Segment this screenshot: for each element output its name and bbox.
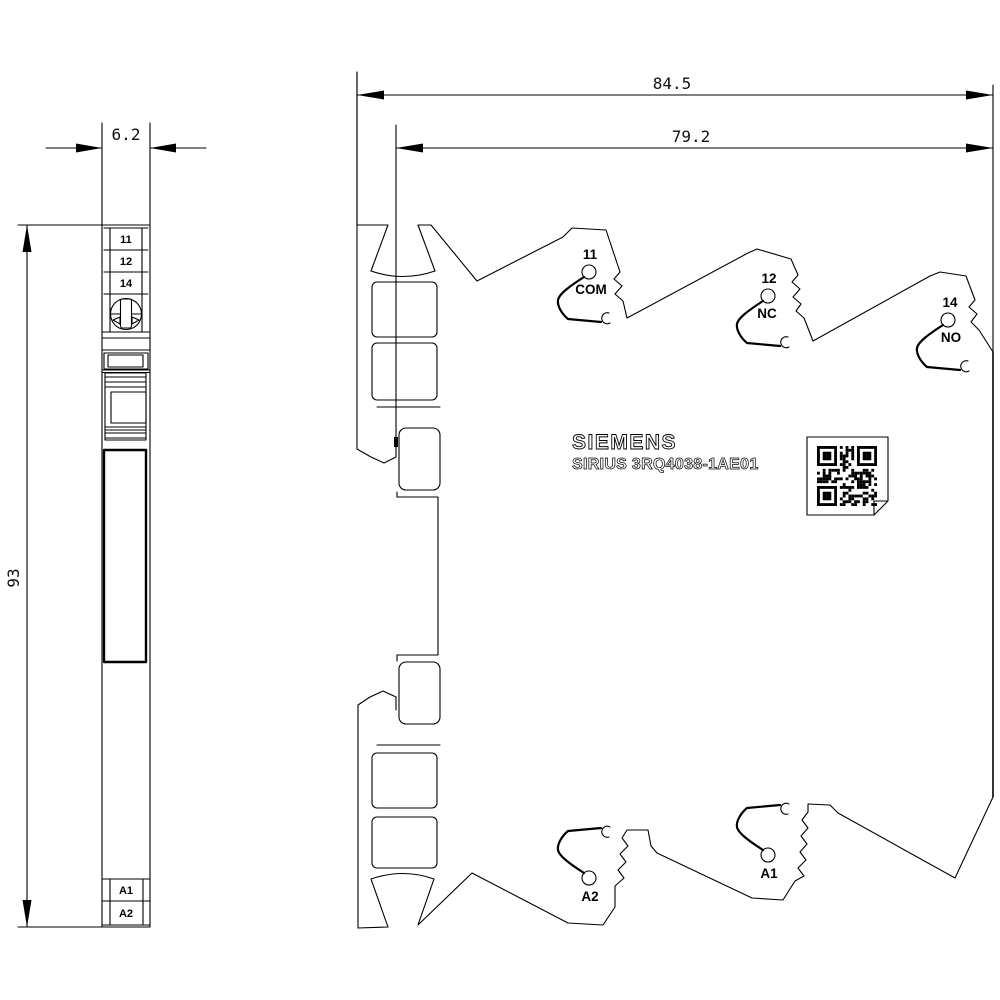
terminal-12-nc: 12 NC — [737, 271, 789, 348]
front-outline-bottom — [358, 797, 993, 928]
side-view: 11 12 14 — [102, 123, 150, 927]
terminal-a1-clamp-lever — [737, 805, 780, 850]
dim-arrow-right — [966, 91, 993, 100]
technical-drawing-canvas: 84.5 79.2 6.2 93 — [0, 0, 1000, 1000]
side-terminal-block-bottom: A1 A2 — [102, 879, 150, 925]
terminal-a2-clamp-lever — [558, 828, 601, 873]
rail-clamp-2 — [372, 343, 437, 400]
din-latch-bottom — [399, 662, 440, 724]
terminal-a1-label: A1 — [760, 866, 778, 881]
dim-arrow-left — [76, 144, 102, 153]
terminal-a1: A1 — [737, 803, 789, 881]
terminal-14-no: 14 NO — [917, 295, 969, 372]
front-outline-top — [357, 225, 993, 352]
terminal-14-clamp-hook — [961, 361, 969, 372]
din-latch-top — [399, 428, 440, 490]
terminal-11-number: 11 — [583, 247, 598, 262]
rail-stop-mark — [394, 437, 398, 447]
terminal-11-function: COM — [575, 282, 607, 297]
terminal-12-number: 12 — [761, 271, 776, 286]
rail-clamp-4 — [372, 817, 437, 868]
marking-label-field — [104, 450, 146, 662]
terminal-14-number: 14 — [942, 295, 958, 310]
dimension-overall-width: 84.5 — [357, 72, 993, 352]
terminal-12-function: NC — [757, 306, 777, 321]
side-label-14: 14 — [120, 278, 133, 290]
terminal-a2-label: A2 — [581, 889, 598, 904]
rail-clamp-3 — [372, 753, 437, 808]
terminal-14-function: NO — [941, 330, 961, 345]
din-rail-mount — [357, 72, 440, 928]
dim-arrow-left — [396, 144, 423, 153]
side-label-11: 11 — [120, 234, 132, 246]
relay-dimension-drawing: 84.5 79.2 6.2 93 — [0, 0, 1000, 1000]
side-label-12: 12 — [120, 256, 132, 268]
terminal-a2-clamp-hook — [602, 826, 610, 837]
product-model-text: SIRIUS 3RQ4038-1AE01 — [572, 456, 759, 473]
dim-text-height: 93 — [4, 568, 23, 587]
dim-text-module-width: 6.2 — [112, 125, 141, 144]
terminal-11-clamp-hook — [602, 313, 610, 324]
qr-code-modules — [817, 446, 877, 506]
rail-clamp-1 — [372, 282, 437, 337]
dim-arrow-top — [23, 225, 32, 252]
dim-arrow-right — [150, 144, 176, 153]
dimension-height: 93 — [4, 225, 102, 927]
side-label-a1: A1 — [119, 885, 133, 897]
terminal-a1-clamp-hook — [781, 803, 789, 814]
side-body-sections — [102, 332, 150, 662]
side-label-a2: A2 — [119, 908, 133, 920]
dim-text-terminal-width: 79.2 — [672, 127, 711, 146]
dim-arrow-bottom — [23, 900, 32, 927]
dim-arrow-right — [966, 144, 993, 153]
dimension-module-width: 6.2 — [46, 125, 206, 153]
terminal-11-com: 11 COM — [558, 247, 610, 324]
brand-logo-text: SIEMENS — [572, 431, 677, 454]
screw-head-icon — [110, 299, 142, 330]
terminal-a2: A2 — [558, 826, 610, 904]
dim-text-overall-width: 84.5 — [653, 74, 692, 93]
qr-code — [807, 437, 888, 515]
dim-arrow-left — [357, 91, 384, 100]
terminal-12-clamp-hook — [781, 337, 789, 348]
front-view: 11 COM 12 NC 14 NO A2 — [357, 72, 993, 928]
dimension-terminal-width: 79.2 — [396, 125, 993, 444]
